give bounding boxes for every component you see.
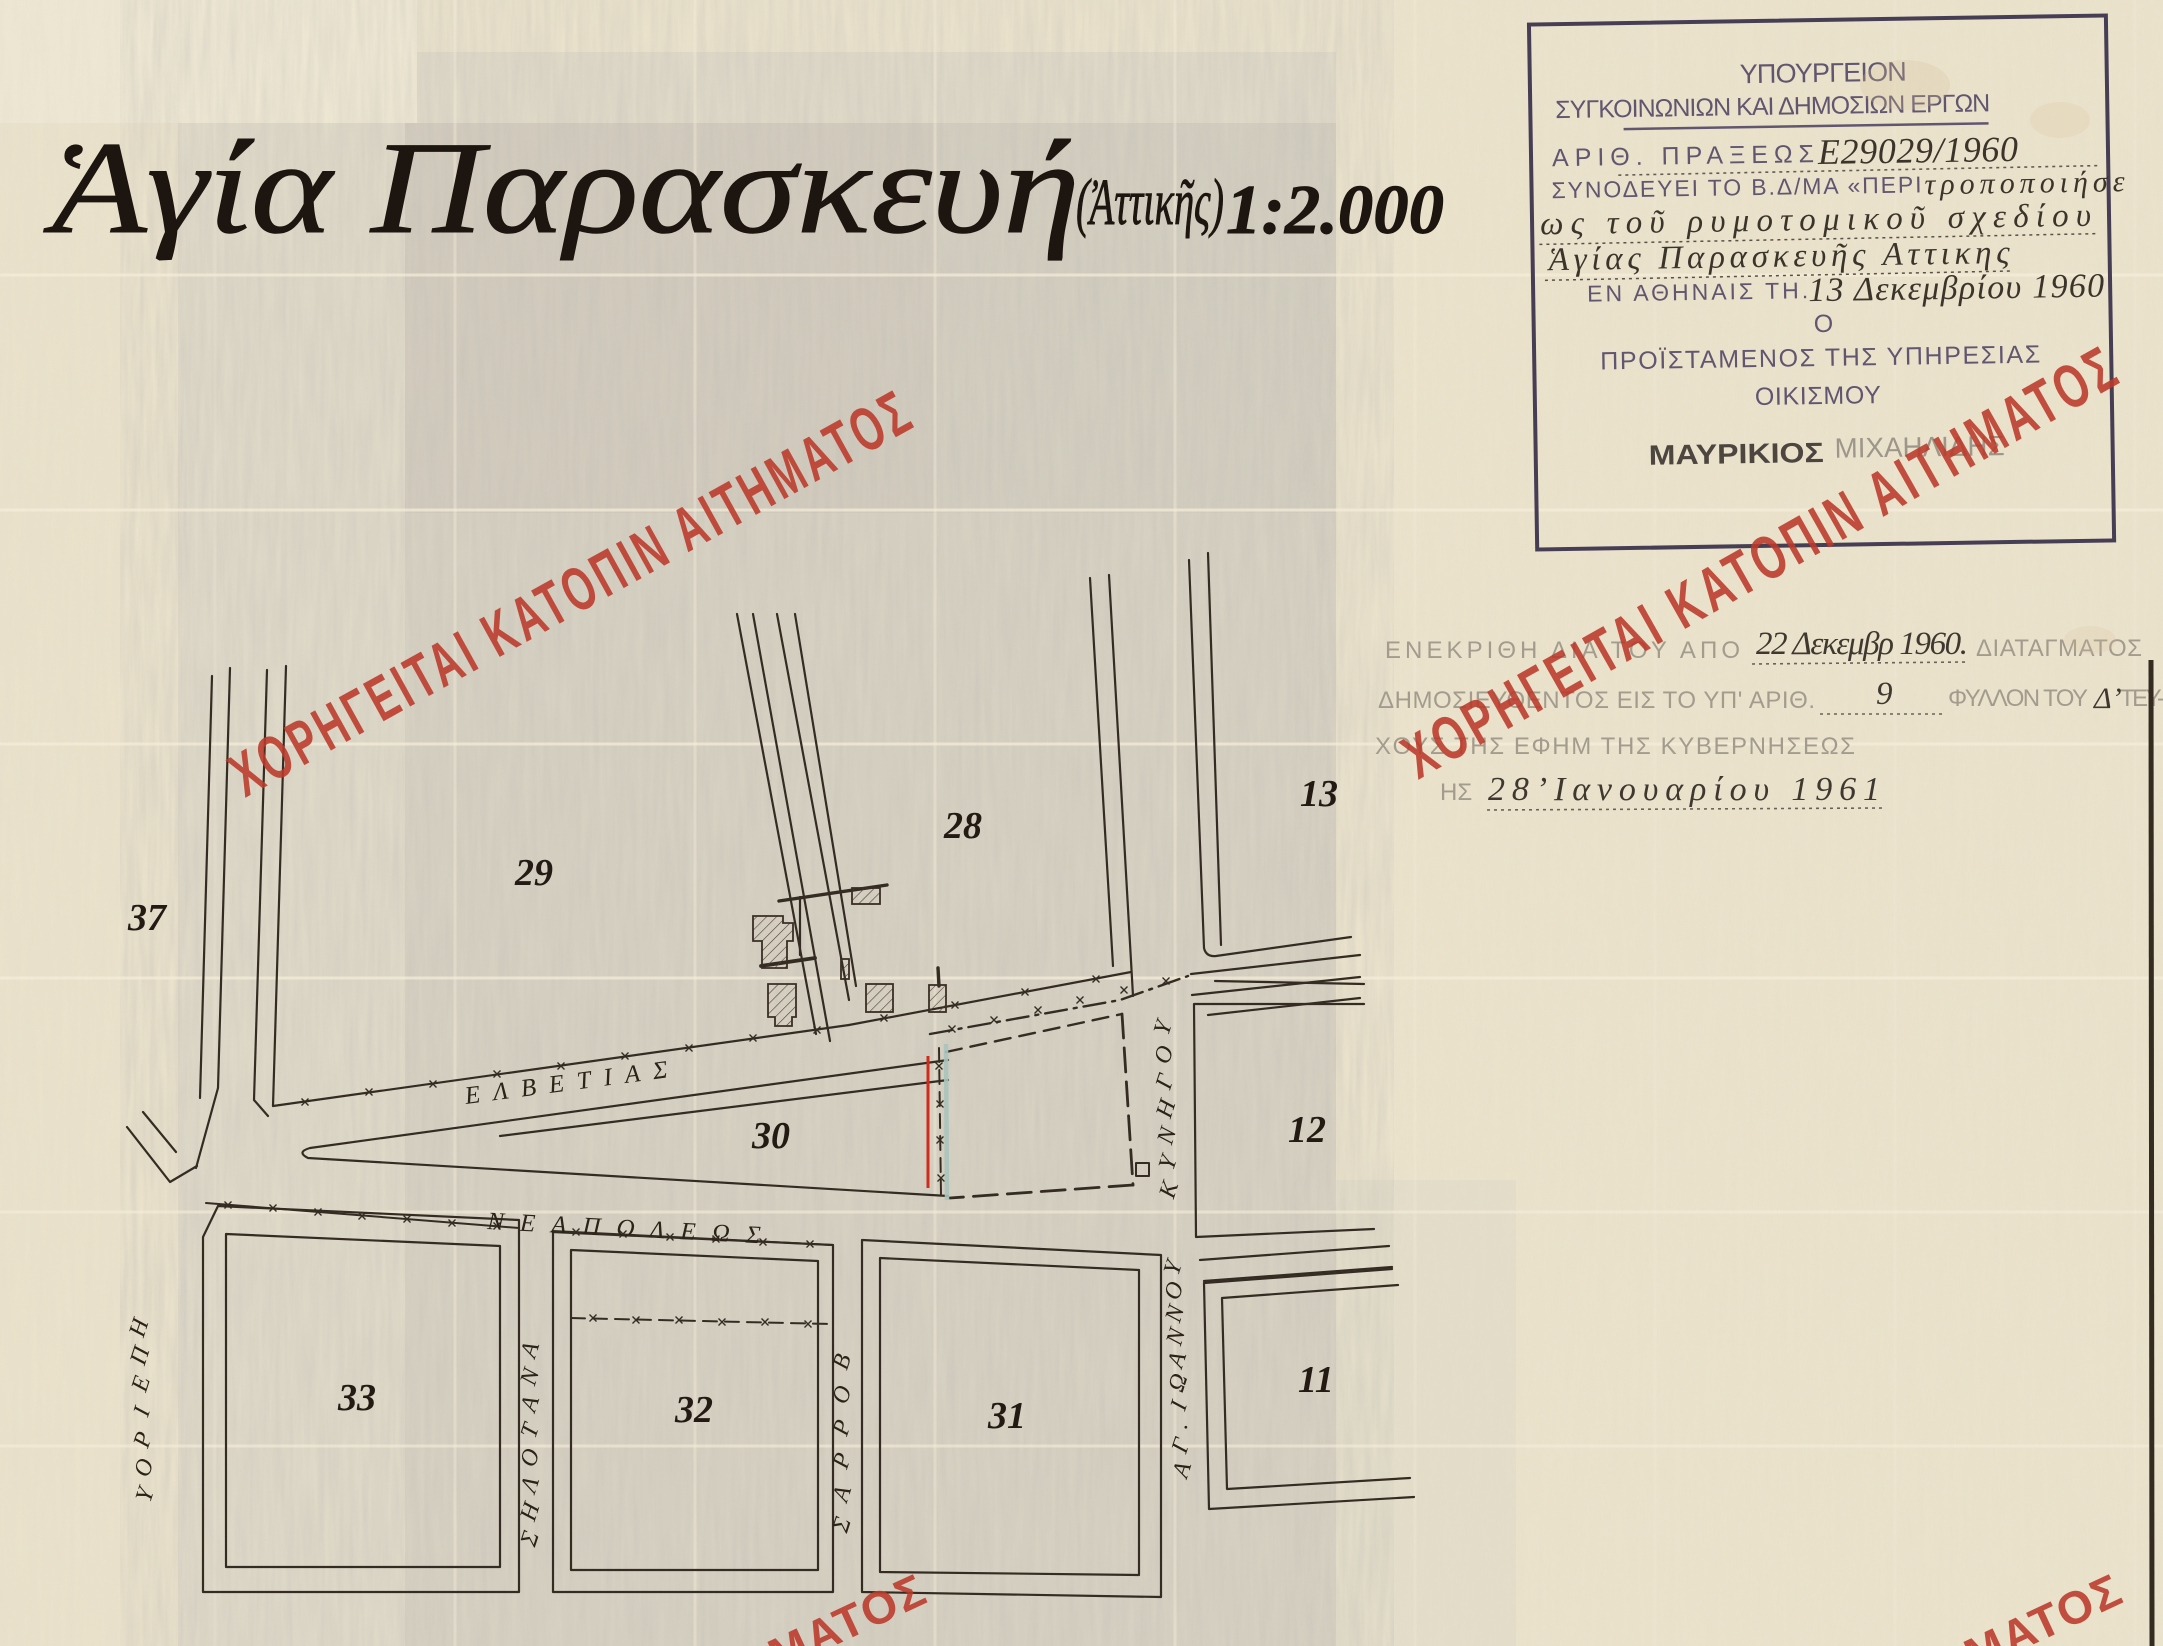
svg-text:12: 12 <box>1288 1109 1326 1151</box>
svg-text:ΟΙΚΙΣΜΟΥ: ΟΙΚΙΣΜΟΥ <box>1755 381 1882 411</box>
svg-text:τροποποιήσε: τροποποιήσε <box>1924 165 2125 201</box>
svg-text:28: 28 <box>943 805 982 847</box>
svg-text:29: 29 <box>514 852 553 894</box>
svg-text:ΤΕΥ-: ΤΕΥ- <box>2120 685 2163 712</box>
svg-text:Δ’: Δ’ <box>2093 682 2122 715</box>
svg-text:ΔΙΑΤΑΓΜΑΤΟΣ: ΔΙΑΤΑΓΜΑΤΟΣ <box>1976 635 2142 662</box>
svg-text:1:2.000: 1:2.000 <box>1226 172 1444 249</box>
svg-text:13: 13 <box>1300 773 1338 815</box>
svg-text:ΦΥΛΛΟΝ ΤΟΥ: ΦΥΛΛΟΝ ΤΟΥ <box>1948 685 2088 712</box>
svg-text:ΕΝ ΑΘΗΝΑΙΣ ΤΗ.: ΕΝ ΑΘΗΝΑΙΣ ΤΗ. <box>1587 277 1808 306</box>
svg-text:33: 33 <box>337 1377 376 1419</box>
svg-text:(Ἀττικῆς): (Ἀττικῆς) <box>1076 166 1224 239</box>
svg-text:Ο: Ο <box>1813 310 1833 338</box>
svg-text:Ἁγία Παρασκευή: Ἁγία Παρασκευή <box>43 114 1080 261</box>
svg-text:32: 32 <box>674 1389 713 1431</box>
svg-text:22 Δεκεμβρ 1960.: 22 Δεκεμβρ 1960. <box>1756 626 1968 662</box>
svg-text:ΜΑΥΡΙΚΙΟΣ: ΜΑΥΡΙΚΙΟΣ <box>1648 437 1823 471</box>
svg-text:9: 9 <box>1876 676 1893 712</box>
svg-text:11: 11 <box>1298 1359 1334 1401</box>
svg-text:31: 31 <box>987 1395 1026 1437</box>
svg-text:13 Δεκεμβρίου 1960: 13 Δεκεμβρίου 1960 <box>1808 268 2105 310</box>
svg-text:37: 37 <box>127 897 168 939</box>
svg-text:Ε29029/1960: Ε29029/1960 <box>1817 129 2019 172</box>
svg-text:30: 30 <box>751 1115 790 1157</box>
svg-text:ΗΣ: ΗΣ <box>1440 779 1472 806</box>
